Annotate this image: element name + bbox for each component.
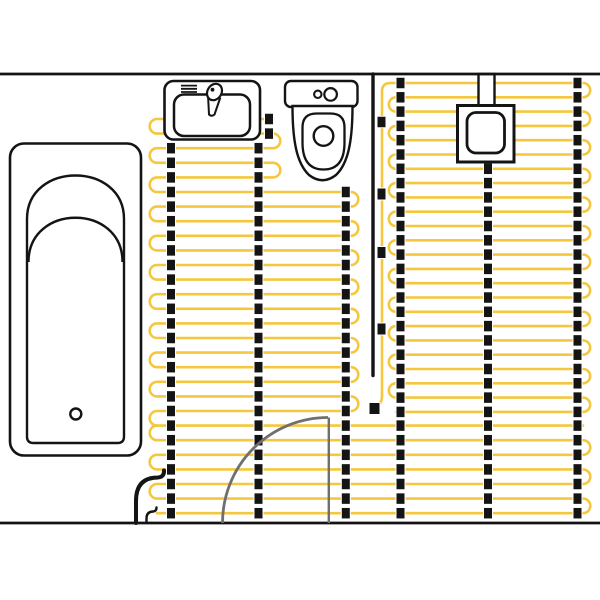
fixing-strip-6-clip — [484, 434, 493, 446]
fixing-strip-5-clip — [396, 292, 405, 304]
fixing-strip-7-clip — [573, 263, 582, 275]
fixing-strip-7-clip — [573, 349, 582, 361]
fixing-strip-5-clip — [396, 320, 405, 332]
underfloor-heating-plan — [0, 0, 600, 600]
fixing-strip-1-clip — [167, 201, 176, 213]
fixing-strip-5-clip — [396, 163, 405, 175]
fixing-strip-4-clip — [341, 361, 350, 373]
fixing-strip-5-clip — [396, 306, 405, 318]
fixing-strip-5-clip — [396, 363, 405, 375]
fixing-strip-2-clip — [254, 449, 263, 461]
toilet-button-large — [324, 88, 337, 101]
fixing-strip-3-clip — [265, 128, 274, 140]
fixing-strip-2-clip — [254, 245, 263, 257]
fixing-strip-6-clip — [484, 378, 493, 390]
fixing-strip-7-clip — [573, 406, 582, 418]
fixing-strip-2-clip — [254, 303, 263, 315]
toilet-button-small — [314, 91, 321, 98]
fixing-strip-7-clip — [573, 106, 582, 118]
fixing-strip-4-clip — [341, 507, 350, 519]
fixing-strip-4-clip — [341, 478, 350, 490]
fixing-strip-6-clip — [484, 420, 493, 432]
fixing-strip-5-clip — [396, 235, 405, 247]
fixing-strip-6-clip — [484, 507, 493, 519]
fixing-strip-1-clip — [167, 449, 176, 461]
fixing-strip-1-clip — [167, 507, 176, 519]
fixing-strip-7-clip — [573, 77, 582, 89]
fixing-strip-4-clip — [341, 376, 350, 388]
fixing-strip-1-clip — [167, 157, 176, 169]
fixing-strip-5-clip — [396, 149, 405, 161]
fixing-strip-2-clip — [254, 361, 263, 373]
fixing-strip-4-clip — [341, 201, 350, 213]
fixing-strip-2-clip — [254, 201, 263, 213]
fixing-strip-7-clip — [573, 92, 582, 104]
fixing-strip-6-clip — [484, 392, 493, 404]
fixing-strip-6-clip — [484, 235, 493, 247]
fixing-strip-5-clip — [396, 420, 405, 432]
fixing-strip-4-clip — [341, 259, 350, 271]
fixing-strip-6-clip — [484, 493, 493, 505]
fixing-strip-7-clip — [573, 292, 582, 304]
fixing-strip-2-clip — [254, 332, 263, 344]
fixing-strip-5-clip — [396, 406, 405, 418]
fixing-strip-2-clip — [254, 142, 263, 154]
fixing-strip-4-clip — [341, 405, 350, 417]
feed-cable-clip — [377, 188, 386, 200]
fixing-strip-6-clip — [484, 263, 493, 275]
fixing-strip-2-clip — [254, 318, 263, 330]
fixing-strip-1-clip — [167, 361, 176, 373]
fixing-strip-7-clip — [573, 163, 582, 175]
fixing-strip-1-clip — [167, 332, 176, 344]
fixing-strip-7-clip — [573, 235, 582, 247]
fixing-strip-4-clip — [341, 449, 350, 461]
fixing-strip-6-clip — [484, 292, 493, 304]
fixing-strip-1-clip — [167, 215, 176, 227]
fixing-strip-1-clip — [167, 142, 176, 154]
fixing-strip-4-clip — [341, 420, 350, 432]
fixing-strip-6-clip — [484, 449, 493, 461]
fixing-strip-6-clip — [484, 177, 493, 189]
fixing-strip-2-clip — [254, 157, 263, 169]
fixing-strip-7-clip — [573, 134, 582, 146]
fixing-strip-4-clip — [341, 332, 350, 344]
fixing-strip-2-clip — [254, 493, 263, 505]
fixing-strip-1-clip — [167, 288, 176, 300]
fixing-strip-7-clip — [573, 464, 582, 476]
fixing-strip-7-clip — [573, 507, 582, 519]
fixing-strip-1-clip — [167, 434, 176, 446]
fixing-strip-5-clip — [396, 77, 405, 89]
fixing-strip-5-clip — [396, 106, 405, 118]
fixing-strip-5-clip — [396, 220, 405, 232]
fixing-strip-5-clip — [396, 392, 405, 404]
fixing-strip-4-clip — [341, 303, 350, 315]
fixing-strip-5-clip — [396, 92, 405, 104]
fixing-strip-1-clip — [167, 186, 176, 198]
fixing-strip-2-clip — [254, 186, 263, 198]
feed-cable-clip — [369, 403, 380, 415]
fixing-strip-6-clip — [484, 363, 493, 375]
fixing-strip-3-clip — [265, 113, 274, 125]
fixing-strip-1-clip — [167, 303, 176, 315]
fixing-strip-1-clip — [167, 464, 176, 476]
fixing-strip-6-clip — [484, 220, 493, 232]
fixing-strip-4-clip — [341, 391, 350, 403]
fixing-strip-7-clip — [573, 306, 582, 318]
fixing-strip-4-clip — [341, 186, 350, 198]
fixing-strip-6-clip — [484, 206, 493, 218]
fixing-strip-2-clip — [254, 215, 263, 227]
fixing-strip-7-clip — [573, 220, 582, 232]
fixing-strip-7-clip — [573, 392, 582, 404]
thermostat-display — [467, 113, 505, 154]
fixing-strip-5-clip — [396, 349, 405, 361]
fixing-strip-6-clip — [484, 163, 493, 175]
fixing-strip-6-clip — [484, 464, 493, 476]
fixing-strip-7-clip — [573, 277, 582, 289]
fixing-strip-2-clip — [254, 376, 263, 388]
heating-cable-bottom-mat — [150, 426, 591, 514]
fixing-strip-6-clip — [484, 320, 493, 332]
fixing-strip-2-clip — [254, 420, 263, 432]
fixing-strip-4-clip — [341, 434, 350, 446]
fixing-strip-7-clip — [573, 449, 582, 461]
feed-cable-clip — [377, 323, 386, 335]
fixing-strip-5-clip — [396, 134, 405, 146]
fixing-strip-2-clip — [254, 230, 263, 242]
fixing-strip-1-clip — [167, 245, 176, 257]
fixing-strip-1-clip — [167, 493, 176, 505]
fixing-strip-4-clip — [341, 464, 350, 476]
fixing-strip-5-clip — [396, 335, 405, 347]
fixing-strip-4-clip — [341, 347, 350, 359]
fixing-strip-7-clip — [573, 434, 582, 446]
faucet-dot — [211, 88, 215, 92]
fixing-strip-7-clip — [573, 378, 582, 390]
fixing-strip-2-clip — [254, 478, 263, 490]
fixing-strip-5-clip — [396, 449, 405, 461]
fixing-strip-6-clip — [484, 192, 493, 204]
fixing-strip-1-clip — [167, 405, 176, 417]
power-lead-thin — [147, 508, 157, 524]
fixing-strip-5-clip — [396, 249, 405, 261]
fixing-strip-6-clip — [484, 277, 493, 289]
fixing-strip-2-clip — [254, 507, 263, 519]
fixing-strip-4-clip — [341, 230, 350, 242]
fixing-strip-1-clip — [167, 391, 176, 403]
bathtub-drain — [70, 409, 81, 420]
fixing-strip-5-clip — [396, 192, 405, 204]
fixing-strip-5-clip — [396, 464, 405, 476]
fixing-strip-5-clip — [396, 263, 405, 275]
fixing-strip-2-clip — [254, 274, 263, 286]
fixing-strip-5-clip — [396, 434, 405, 446]
fixing-strip-5-clip — [396, 507, 405, 519]
fixing-strip-4-clip — [341, 493, 350, 505]
fixing-strip-7-clip — [573, 120, 582, 131]
fixing-strip-4-clip — [341, 288, 350, 300]
fixing-strip-1-clip — [167, 347, 176, 359]
floorplan-canvas — [0, 0, 600, 600]
power-lead-thick — [136, 471, 164, 524]
fixing-strip-1-clip — [167, 274, 176, 286]
fixing-strip-7-clip — [573, 249, 582, 261]
fixing-strip-7-clip — [573, 177, 582, 189]
fixing-strip-6-clip — [484, 335, 493, 347]
bathtub-basin — [27, 176, 124, 444]
fixing-strip-7-clip — [573, 320, 582, 332]
fixing-strip-7-clip — [573, 478, 582, 490]
fixing-strip-7-clip — [573, 149, 582, 161]
fixing-strip-7-clip — [573, 363, 582, 375]
fixing-strip-5-clip — [396, 206, 405, 218]
fixing-strip-1-clip — [167, 172, 176, 184]
fixing-strip-2-clip — [254, 172, 263, 184]
fixing-strip-4-clip — [341, 318, 350, 330]
fixing-strip-1-clip — [167, 478, 176, 490]
fixing-strip-5-clip — [396, 478, 405, 490]
feed-cable-clip — [377, 116, 386, 128]
fixing-strip-7-clip — [573, 206, 582, 218]
fixing-strip-6-clip — [484, 478, 493, 490]
fixing-strip-2-clip — [254, 347, 263, 359]
fixing-strip-5-clip — [396, 493, 405, 505]
fixing-strip-1-clip — [167, 318, 176, 330]
fixing-strip-1-clip — [167, 376, 176, 388]
fixing-strip-4-clip — [341, 274, 350, 286]
fixing-strip-1-clip — [167, 230, 176, 242]
thermostat-conduit — [479, 74, 495, 107]
fixing-strip-5-clip — [396, 378, 405, 390]
fixing-strip-1-clip — [167, 420, 176, 432]
fixing-strip-4-clip — [341, 245, 350, 257]
fixing-strip-7-clip — [573, 335, 582, 347]
toilet-flush-hole — [314, 126, 334, 146]
fixing-strip-6-clip — [484, 249, 493, 261]
fixing-strip-5-clip — [396, 277, 405, 289]
fixing-strip-6-clip — [484, 406, 493, 418]
fixing-strip-7-clip — [573, 493, 582, 505]
fixing-strip-1-clip — [167, 259, 176, 271]
fixing-strip-2-clip — [254, 405, 263, 417]
fixing-strip-5-clip — [396, 177, 405, 189]
fixing-strip-6-clip — [484, 306, 493, 318]
fixing-strip-7-clip — [573, 420, 582, 432]
fixing-strip-6-clip — [484, 349, 493, 361]
fixing-strip-5-clip — [396, 120, 405, 131]
fixing-strip-2-clip — [254, 391, 263, 403]
fixing-strip-7-clip — [573, 192, 582, 204]
fixing-strip-2-clip — [254, 259, 263, 271]
feed-cable-clip — [377, 247, 386, 259]
fixing-strip-2-clip — [254, 464, 263, 476]
fixing-strip-2-clip — [254, 288, 263, 300]
fixing-strip-4-clip — [341, 215, 350, 227]
